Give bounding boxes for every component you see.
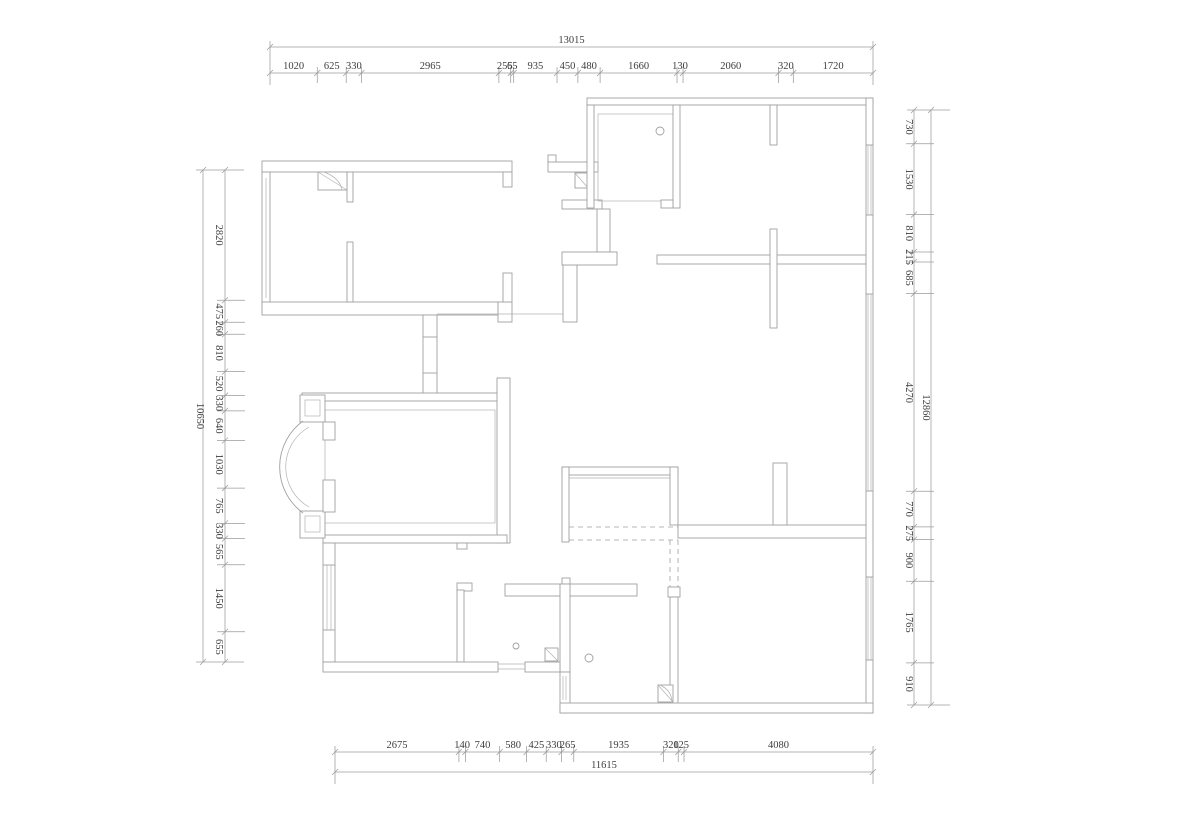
dimension-chain-left: 2820475260810520330640103076533056514506… bbox=[194, 167, 245, 665]
left-wing-walls bbox=[262, 161, 512, 395]
dim-label: 625 bbox=[324, 61, 340, 72]
dim-label: 580 bbox=[505, 740, 521, 751]
dim-label: 13015 bbox=[558, 35, 584, 46]
dim-label: 275 bbox=[903, 525, 914, 541]
dimension-chain-top: 1020625330296525565935450480166013020603… bbox=[267, 35, 876, 85]
dimension-chain-right: 7301530810215685427077027590017659101286… bbox=[903, 107, 950, 708]
bottom-right-bedroom-walls bbox=[658, 463, 866, 705]
dim-label: 320 bbox=[778, 61, 794, 72]
room-inner-outline bbox=[325, 410, 495, 523]
dim-label: 2675 bbox=[386, 740, 407, 751]
bottom-protrusion-walls bbox=[560, 672, 873, 713]
dim-label: 770 bbox=[903, 501, 914, 517]
ceiling-fixture-circle bbox=[585, 654, 593, 662]
door-threshold bbox=[498, 664, 525, 669]
dim-label: 450 bbox=[560, 61, 576, 72]
dim-label: 2820 bbox=[213, 225, 224, 246]
dim-label: 520 bbox=[213, 376, 224, 392]
living-room-walls bbox=[302, 378, 510, 549]
wardrobe-dashed-area bbox=[562, 467, 678, 588]
dim-label: 130 bbox=[672, 61, 688, 72]
dim-label: 810 bbox=[213, 345, 224, 361]
dim-label: 1660 bbox=[628, 61, 649, 72]
dim-label: 2060 bbox=[720, 61, 741, 72]
bay-window-arc-inner bbox=[286, 427, 309, 507]
dim-label: 565 bbox=[213, 544, 224, 560]
dim-label: 475 bbox=[213, 303, 224, 319]
dim-label: 4080 bbox=[768, 740, 789, 751]
dim-label: 12860 bbox=[920, 394, 931, 420]
ceiling-fixture-circle bbox=[656, 127, 664, 135]
dim-label: 125 bbox=[673, 740, 689, 751]
dim-label: 740 bbox=[475, 740, 491, 751]
dim-label: 1935 bbox=[608, 740, 629, 751]
dim-label: 10650 bbox=[194, 403, 205, 429]
dim-label: 1765 bbox=[903, 612, 914, 633]
dim-label: 730 bbox=[903, 119, 914, 135]
shaft-flue-symbol bbox=[545, 648, 558, 661]
floor-plan-drawing: 1020625330296525565935450480166013020603… bbox=[0, 0, 1200, 831]
dim-label: 685 bbox=[903, 270, 914, 286]
shaft-flue-symbol bbox=[575, 173, 588, 188]
dim-label: 260 bbox=[213, 320, 224, 336]
dim-label: 900 bbox=[903, 553, 914, 569]
dim-label: 640 bbox=[213, 418, 224, 434]
dim-label: 1030 bbox=[213, 454, 224, 475]
dim-label: 2965 bbox=[420, 61, 441, 72]
dim-label: 655 bbox=[213, 639, 224, 655]
dim-label: 480 bbox=[581, 61, 597, 72]
dim-label: 215 bbox=[903, 249, 914, 265]
dim-label: 330 bbox=[213, 395, 224, 411]
right-block-walls bbox=[587, 98, 873, 713]
bottom-left-room-walls bbox=[323, 543, 560, 672]
dim-label: 11615 bbox=[591, 760, 617, 771]
dim-label: 1450 bbox=[213, 588, 224, 609]
bay-window bbox=[280, 395, 335, 538]
dim-label: 4270 bbox=[903, 382, 914, 403]
dim-label: 810 bbox=[903, 225, 914, 241]
floor-plan-canvas: 1020625330296525565935450480166013020603… bbox=[0, 0, 1200, 831]
dim-label: 1020 bbox=[283, 61, 304, 72]
bathroom-walls bbox=[457, 578, 637, 672]
shaft-flue-symbol bbox=[658, 685, 673, 702]
dim-label: 425 bbox=[528, 740, 544, 751]
ceiling-fixture-circle bbox=[513, 643, 519, 649]
dim-label: 765 bbox=[213, 498, 224, 514]
dim-label: 1720 bbox=[823, 61, 844, 72]
dim-label: 140 bbox=[454, 740, 470, 751]
shaft-flue-symbol bbox=[318, 172, 347, 190]
dim-label: 330 bbox=[213, 523, 224, 539]
dim-label: 910 bbox=[903, 676, 914, 692]
dim-label: 1530 bbox=[903, 169, 914, 190]
dim-label: 330 bbox=[346, 61, 362, 72]
dimension-chain-bottom: 2675140740580425330265193532012540801161… bbox=[332, 740, 876, 784]
dim-label: 935 bbox=[527, 61, 543, 72]
dim-label: 265 bbox=[560, 740, 576, 751]
dim-label: 65 bbox=[507, 61, 518, 72]
bay-window-arc-outer bbox=[280, 421, 303, 513]
